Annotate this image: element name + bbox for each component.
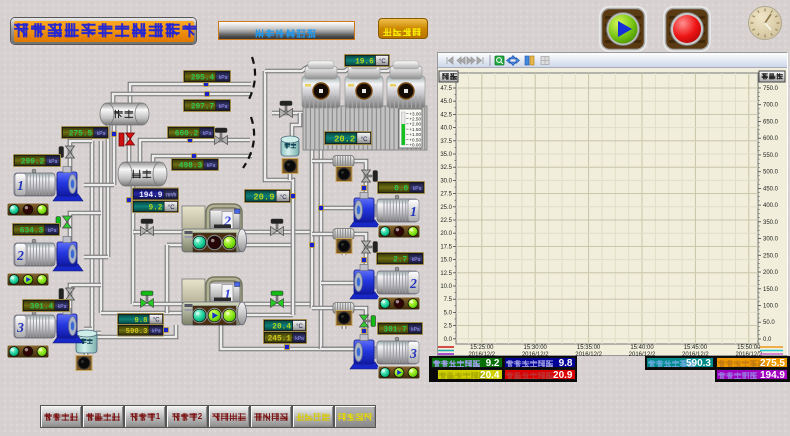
svg-text:634.3: 634.3 — [20, 227, 44, 235]
svg-text:9.2: 9.2 — [148, 204, 162, 212]
svg-text:275.5: 275.5 — [69, 130, 93, 138]
svg-text:kPa: kPa — [48, 228, 57, 234]
svg-text:1: 1 — [17, 178, 24, 193]
svg-text:301.4: 301.4 — [30, 303, 54, 311]
svg-text:0.0: 0.0 — [394, 185, 408, 193]
svg-text:3: 3 — [409, 346, 417, 361]
svg-text:kPa: kPa — [97, 131, 106, 137]
svg-text:295.4: 295.4 — [191, 74, 215, 82]
svg-text:20.9: 20.9 — [253, 192, 274, 202]
svg-text:20.2: 20.2 — [334, 134, 355, 144]
svg-text:kPa: kPa — [219, 104, 228, 110]
svg-text:498.3: 498.3 — [179, 162, 203, 170]
svg-text:kPa: kPa — [152, 329, 161, 335]
svg-text:kPa: kPa — [58, 304, 67, 310]
svg-text:°C: °C — [361, 137, 368, 143]
svg-text:kPa: kPa — [412, 257, 421, 263]
svg-text:19.6: 19.6 — [355, 58, 374, 66]
svg-text:20.4: 20.4 — [272, 323, 291, 331]
svg-text:kPa: kPa — [413, 186, 422, 192]
svg-text:kPa: kPa — [49, 159, 58, 165]
svg-text:kPa: kPa — [207, 163, 216, 169]
svg-text:194.9: 194.9 — [139, 192, 163, 200]
svg-text:590.3: 590.3 — [126, 328, 149, 336]
svg-text:2: 2 — [409, 276, 417, 291]
svg-text:m³/h: m³/h — [166, 193, 176, 199]
svg-text:°C: °C — [379, 59, 386, 65]
svg-text:°C: °C — [168, 205, 175, 211]
svg-text:9.8: 9.8 — [134, 317, 147, 325]
svg-text:°C: °C — [296, 324, 303, 330]
svg-text:kPa: kPa — [295, 336, 304, 342]
svg-text:297.7: 297.7 — [191, 103, 215, 111]
svg-text:kPa: kPa — [203, 131, 212, 137]
svg-text:1: 1 — [410, 204, 417, 219]
svg-text:3: 3 — [16, 320, 24, 335]
svg-text:kPa: kPa — [219, 75, 228, 81]
svg-text:600.2: 600.2 — [175, 130, 199, 138]
svg-text:299.2: 299.2 — [21, 158, 45, 166]
svg-text:°C: °C — [280, 195, 287, 201]
svg-text:245.1: 245.1 — [268, 335, 292, 343]
svg-text:°C: °C — [153, 318, 160, 324]
svg-text:+0.00: +0.00 — [409, 143, 421, 148]
svg-text:kPa: kPa — [411, 327, 420, 333]
svg-text:2: 2 — [16, 248, 24, 263]
svg-text:2.7: 2.7 — [393, 256, 407, 264]
svg-text:301.7: 301.7 — [383, 326, 407, 334]
